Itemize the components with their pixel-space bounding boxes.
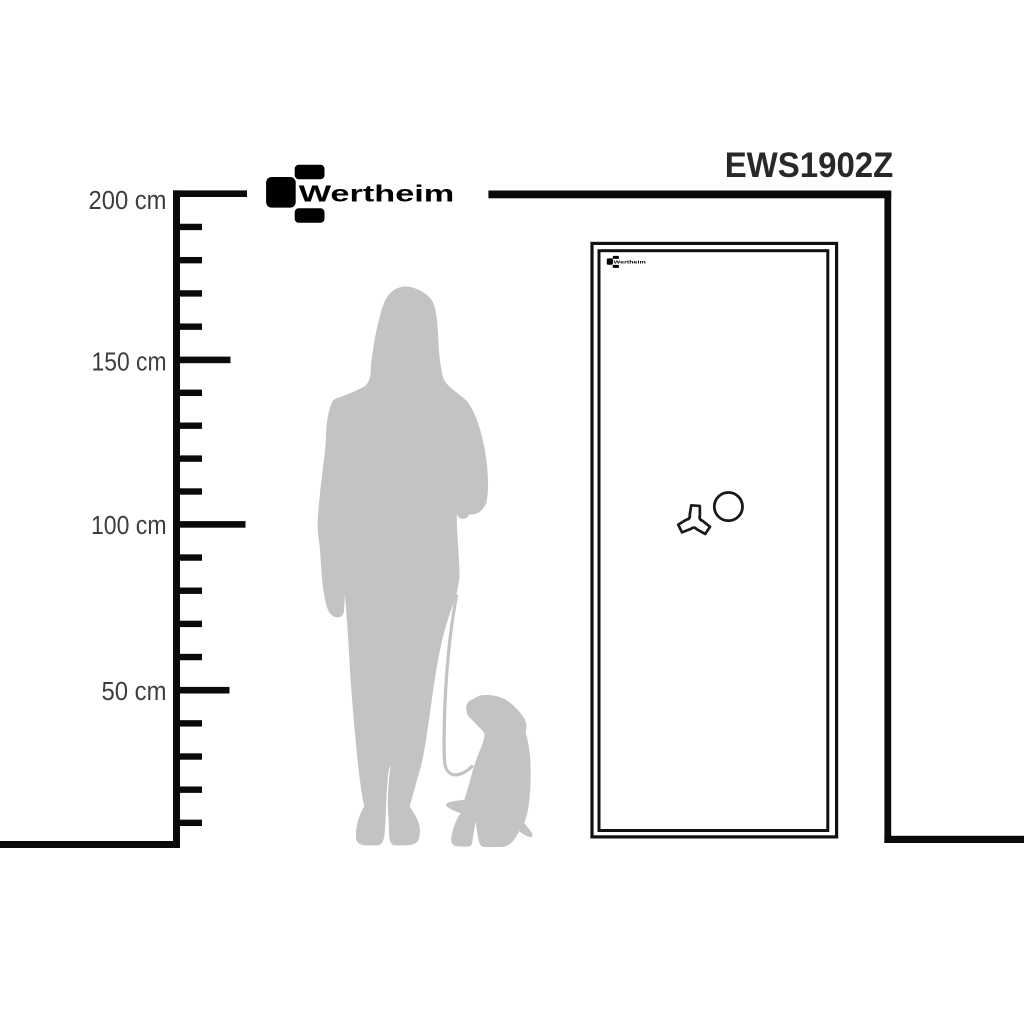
svg-text:EWS1902Z: EWS1902Z [725, 145, 894, 185]
svg-text:200 cm: 200 cm [89, 187, 167, 215]
svg-text:100 cm: 100 cm [91, 512, 167, 540]
svg-text:50 cm: 50 cm [102, 678, 167, 706]
svg-text:150 cm: 150 cm [92, 349, 167, 377]
